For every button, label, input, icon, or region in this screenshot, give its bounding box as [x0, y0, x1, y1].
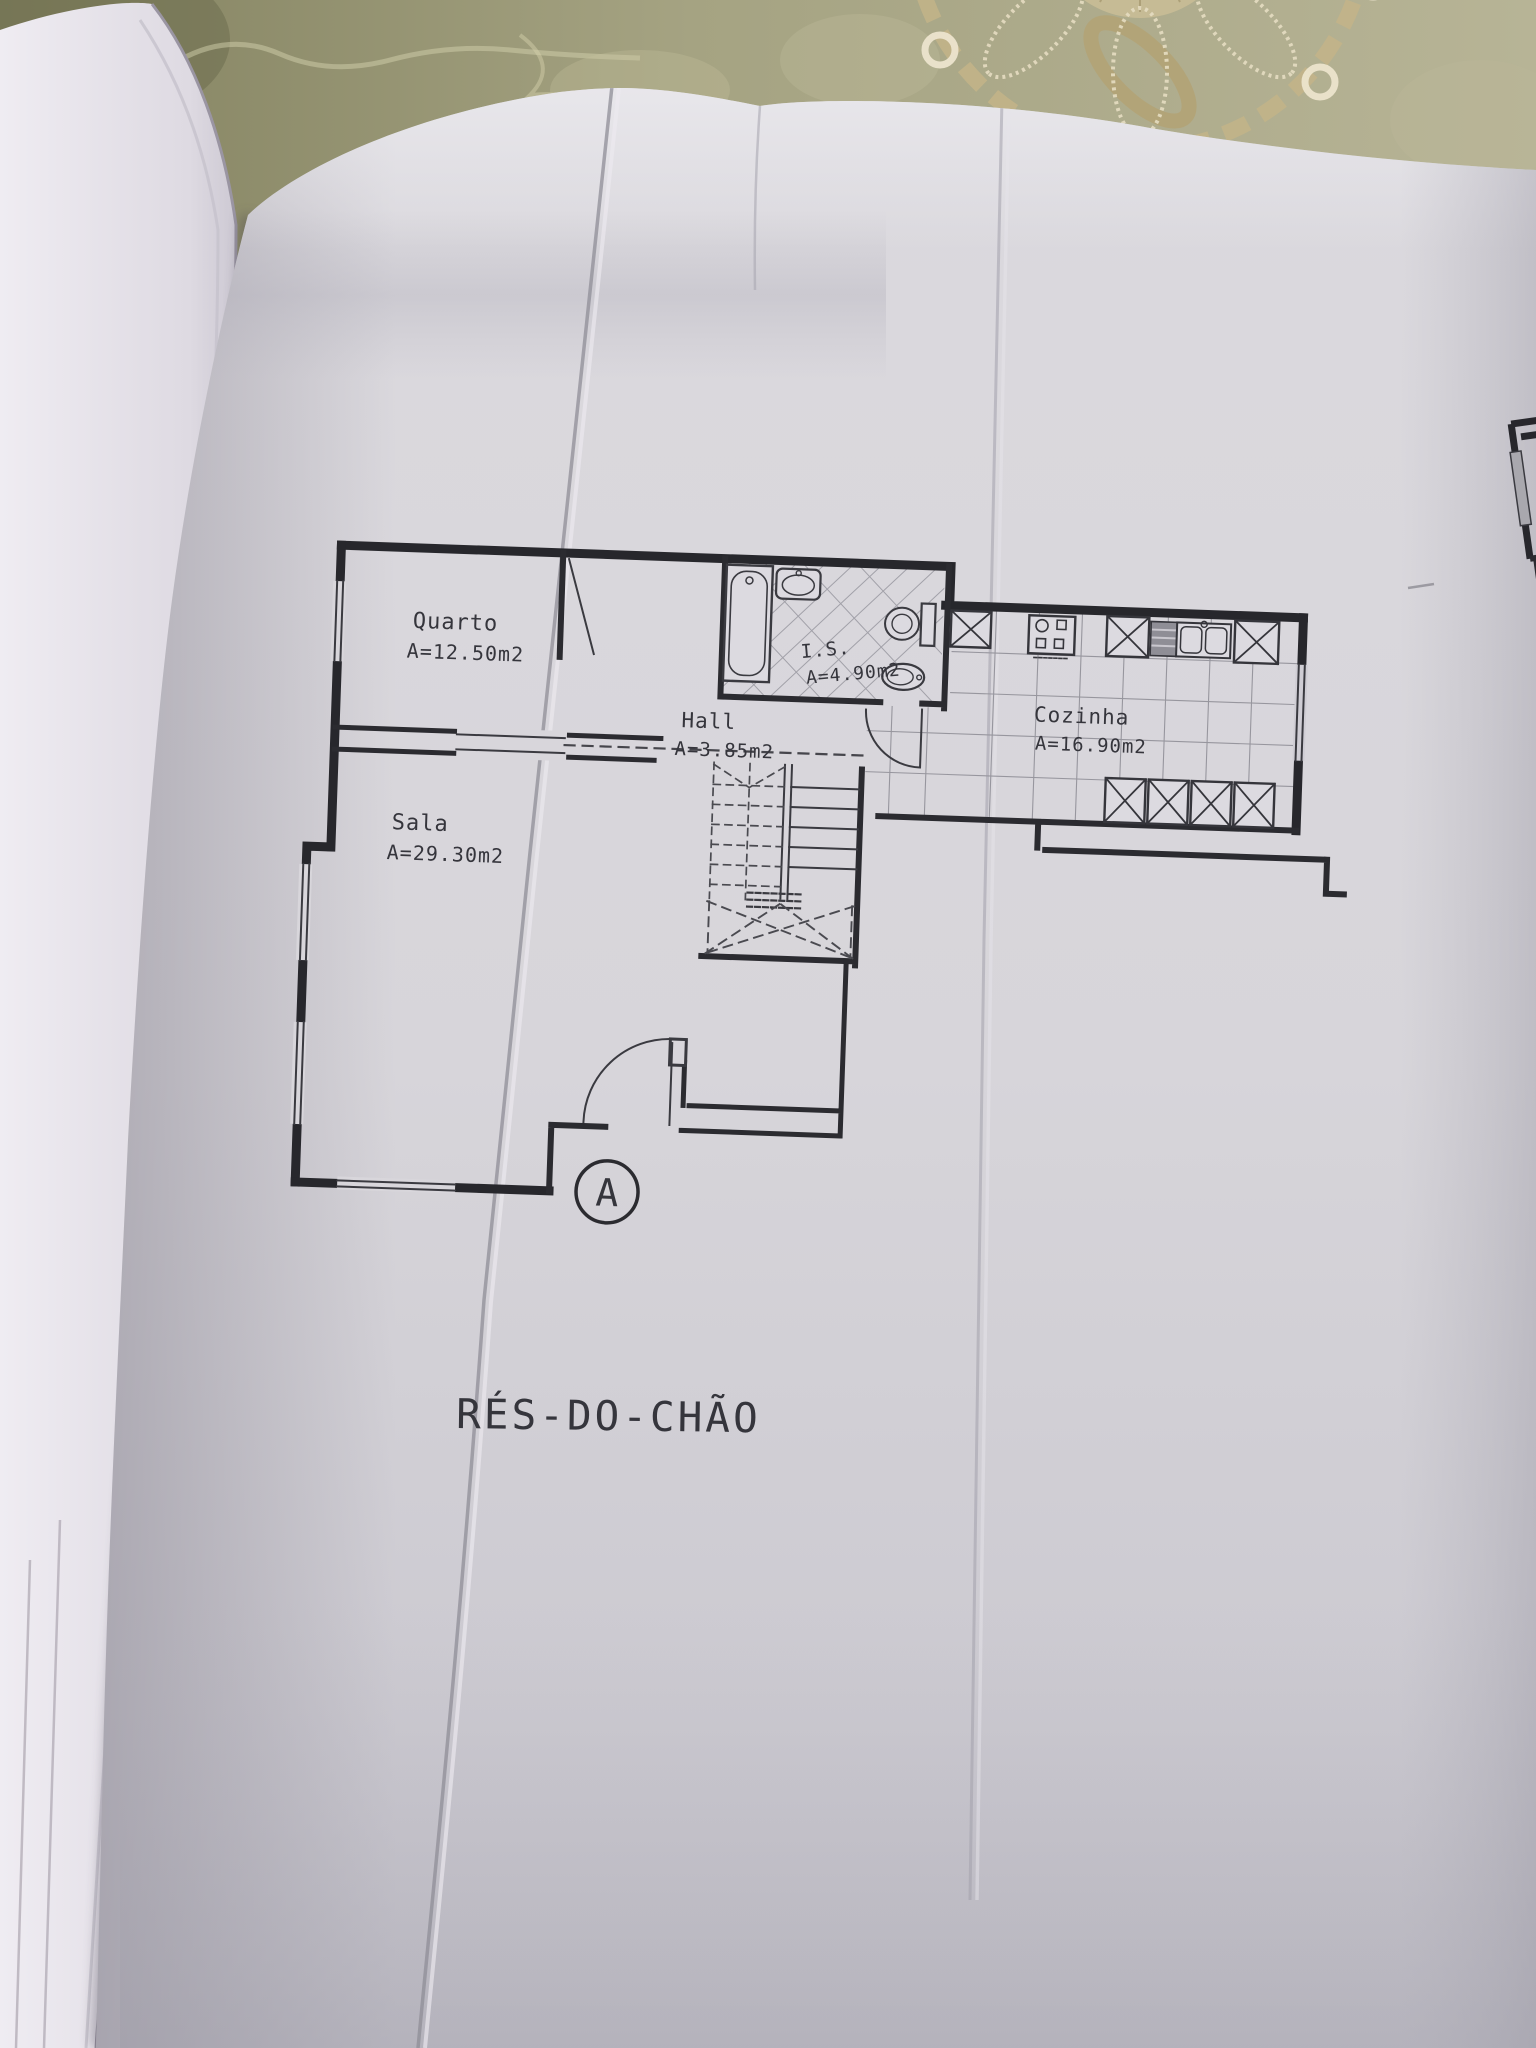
- cabinet-x-box: [1104, 778, 1146, 823]
- room-area-hall: A=3.85m2: [674, 738, 774, 763]
- room-area-sala: A=29.30m2: [386, 840, 504, 868]
- room-label-hall: Hall: [681, 708, 736, 734]
- cabinet-x-box: [1233, 783, 1275, 828]
- kitchen-sink-icon: [1176, 620, 1231, 658]
- floor-title: RÉS-DO-CHÃO: [456, 1390, 761, 1442]
- bathtub-icon: [723, 565, 773, 683]
- cabinet-x-box: [1106, 616, 1149, 657]
- photo-of-floor-plan: A Quarto A=12.50m2 Sala A=29.30m2 Hall A…: [0, 0, 1536, 2048]
- washbasin-icon: [776, 568, 821, 600]
- room-area-cozinha: A=16.90m2: [1035, 733, 1148, 759]
- room-label-is: I.S.: [800, 637, 851, 663]
- cabinet-x-box: [950, 611, 991, 648]
- cabinet-x-box: [1147, 780, 1189, 825]
- stove-icon: [1028, 615, 1075, 659]
- room-label-quarto: Quarto: [412, 609, 498, 637]
- room-label-sala: Sala: [391, 810, 449, 837]
- room-label-cozinha: Cozinha: [1034, 702, 1130, 729]
- room-area-quarto: A=12.50m2: [406, 639, 524, 667]
- cabinet-x-box: [1190, 781, 1232, 826]
- book-right-page: [96, 80, 1536, 2048]
- section-marker-label: A: [595, 1170, 620, 1215]
- counter-hatch-box: [1150, 621, 1177, 656]
- cabinet-x-box: [1234, 620, 1279, 664]
